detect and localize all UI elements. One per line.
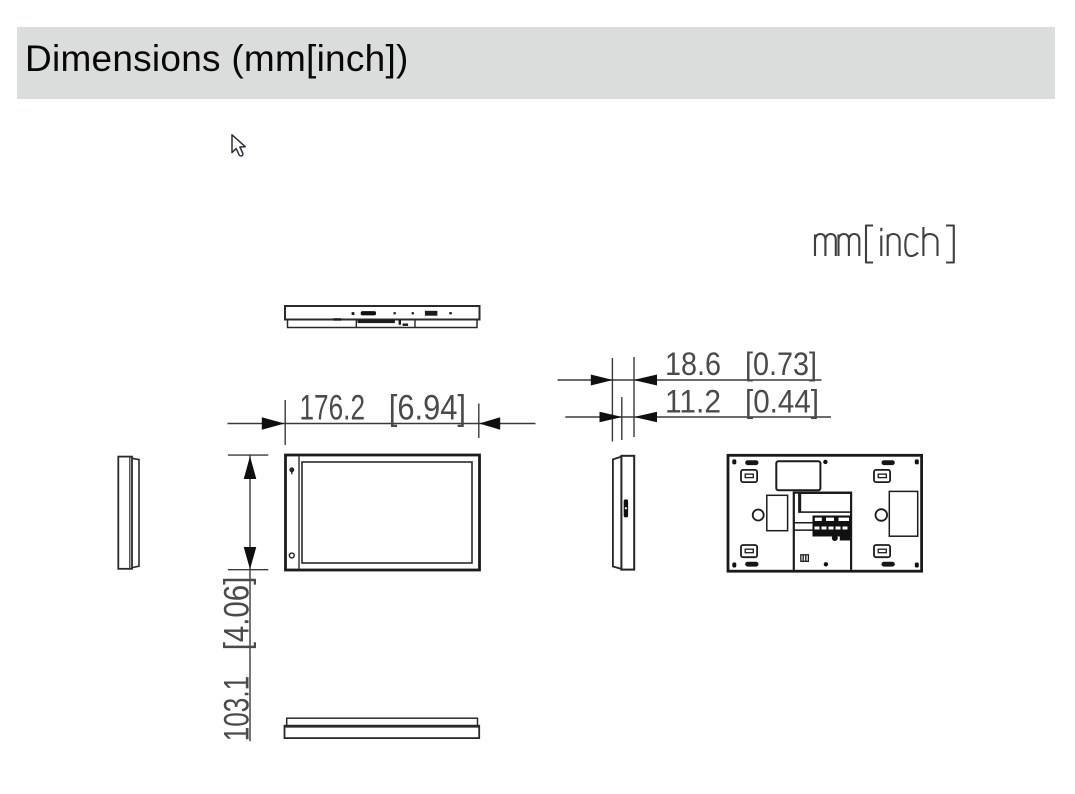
svg-text:[0.73]: [0.73] xyxy=(745,346,817,382)
svg-text:18.6: 18.6 xyxy=(665,346,721,382)
svg-text:176.2: 176.2 xyxy=(300,388,366,428)
svg-text:103.1: 103.1 xyxy=(217,676,257,742)
svg-text:11.2: 11.2 xyxy=(665,384,721,420)
svg-text:[6.94]: [6.94] xyxy=(389,388,466,428)
svg-text:[0.44]: [0.44] xyxy=(745,384,819,420)
svg-text:[4.06]: [4.06] xyxy=(217,577,257,651)
